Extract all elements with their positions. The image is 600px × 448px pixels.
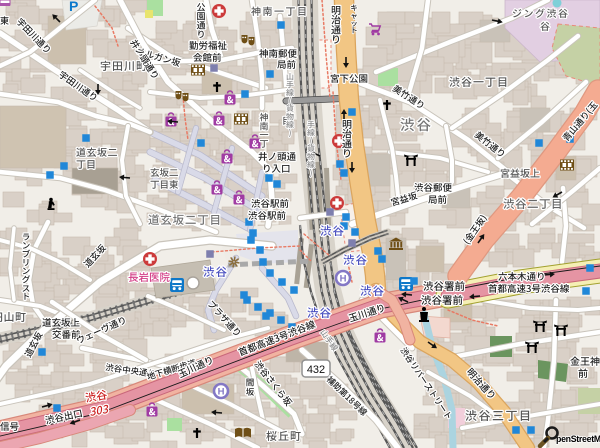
svg-text:渋谷: 渋谷: [203, 264, 228, 280]
svg-text:局前: 局前: [428, 192, 448, 206]
svg-text:宮下公園: 宮下公園: [330, 71, 368, 85]
svg-text:penStreetMap: penStreetMap: [556, 434, 600, 444]
svg-text:信号: 信号: [0, 419, 20, 433]
svg-text:公園通り: 公園通り: [195, 2, 208, 39]
svg-text:手線(貨物線): 手線(貨物線): [306, 120, 317, 177]
svg-text:東: 東: [0, 14, 9, 27]
svg-text:P: P: [69, 0, 78, 14]
svg-text:谷: 谷: [540, 18, 550, 33]
svg-text:&: &: [149, 405, 156, 418]
svg-text:渋谷署前: 渋谷署前: [421, 293, 463, 308]
svg-text:432: 432: [307, 364, 325, 376]
svg-text:明治通り: 明治通り: [329, 4, 344, 44]
svg-text:神南一丁: 神南一丁: [258, 112, 271, 148]
svg-text:渋谷: 渋谷: [360, 283, 385, 299]
svg-text:渋谷三丁目: 渋谷三丁目: [465, 407, 533, 424]
svg-text:ランブリングスト: ランブリングスト: [20, 232, 32, 300]
svg-text:キャット: キャット: [349, 4, 360, 34]
svg-text:渋谷二丁目: 渋谷二丁目: [503, 196, 563, 212]
svg-text:渋谷駅前: 渋谷駅前: [248, 208, 287, 222]
svg-text:長岩医院: 長岩医院: [128, 270, 170, 285]
svg-text:山手線(貨物線): 山手線(貨物線): [285, 72, 296, 137]
svg-text:円山町: 円山町: [0, 309, 27, 325]
svg-text:渋谷: 渋谷: [400, 114, 433, 135]
svg-text:丁目: 丁目: [76, 156, 96, 171]
svg-text:&: &: [377, 331, 384, 344]
svg-text:&: &: [227, 93, 234, 106]
svg-text:渋谷一丁目: 渋谷一丁目: [449, 74, 509, 90]
svg-text:&: &: [214, 183, 221, 196]
svg-text:&: &: [236, 193, 243, 206]
svg-text:間坂: 間坂: [244, 378, 256, 396]
svg-text:局前: 局前: [277, 57, 297, 71]
svg-text:宮益坂上: 宮益坂上: [500, 165, 540, 180]
svg-text:&: &: [216, 114, 223, 127]
svg-text:首都高速3号渋谷線: 首都高速3号渋谷線: [488, 281, 570, 295]
svg-text:道玄坂二丁目: 道玄坂二丁目: [148, 212, 222, 228]
svg-text:前: 前: [578, 365, 588, 380]
svg-text:渋谷署前: 渋谷署前: [423, 279, 465, 294]
svg-text:り入口: り入口: [262, 161, 291, 175]
svg-text:H: H: [340, 270, 347, 284]
svg-text:六本木通り: 六本木通り: [498, 269, 546, 283]
svg-text:会館前: 会館前: [193, 50, 222, 64]
svg-text:明治通り: 明治通り: [340, 118, 355, 158]
svg-text:H: H: [218, 383, 225, 397]
svg-text:渋谷: 渋谷: [343, 252, 368, 268]
svg-text:丁目東: 丁目東: [150, 177, 179, 191]
svg-text:桜丘町: 桜丘町: [266, 428, 302, 444]
svg-text:渋谷: 渋谷: [320, 223, 345, 239]
svg-text:&: &: [224, 152, 231, 165]
svg-text:神南一丁目: 神南一丁目: [251, 3, 309, 18]
